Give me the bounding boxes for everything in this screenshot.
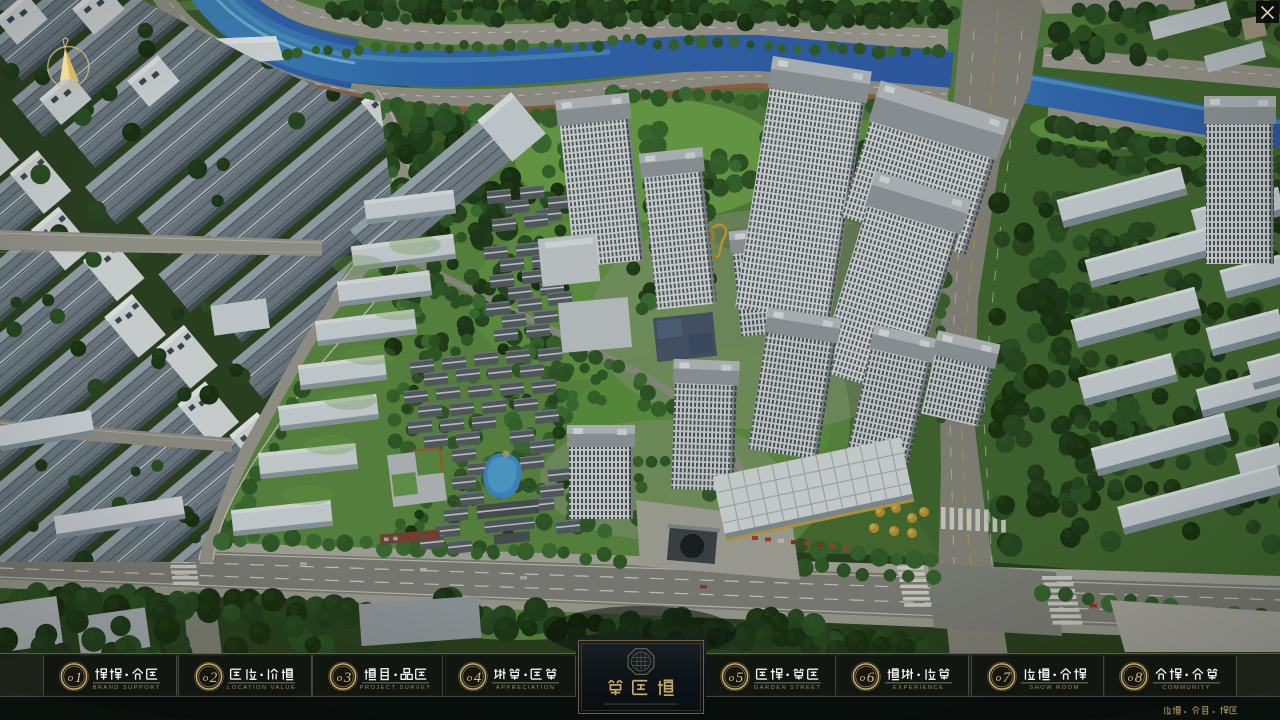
svg-text:o: o [467, 672, 473, 684]
svg-text:o: o [68, 672, 74, 684]
svg-text:5: 5 [736, 670, 744, 686]
svg-text:APPRECIATION: APPRECIATION [496, 685, 556, 691]
svg-text:BRAND SUPPORT: BRAND SUPPORT [93, 685, 161, 691]
svg-text:GARDEN STREET: GARDEN STREET [754, 685, 821, 691]
svg-text:o: o [1128, 672, 1134, 684]
svg-text:o: o [729, 672, 735, 684]
svg-text:2: 2 [210, 670, 218, 686]
svg-text:o: o [203, 672, 209, 684]
svg-text:SHOW ROOM: SHOW ROOM [1029, 685, 1079, 691]
svg-text:o: o [996, 672, 1002, 684]
svg-text:LOCATION VALUE: LOCATION VALUE [227, 685, 296, 691]
svg-text:o: o [337, 672, 343, 684]
svg-text:6: 6 [867, 670, 875, 686]
svg-text:1: 1 [75, 670, 83, 686]
svg-text:EXPERIENCE: EXPERIENCE [893, 685, 944, 691]
svg-text:PROJECT SURVEY: PROJECT SURVEY [360, 685, 432, 691]
svg-text:8: 8 [1135, 670, 1143, 686]
svg-text:3: 3 [343, 670, 352, 686]
svg-text:o: o [860, 672, 866, 684]
svg-text:COMMUNITY: COMMUNITY [1162, 685, 1210, 691]
svg-text:4: 4 [474, 670, 482, 686]
